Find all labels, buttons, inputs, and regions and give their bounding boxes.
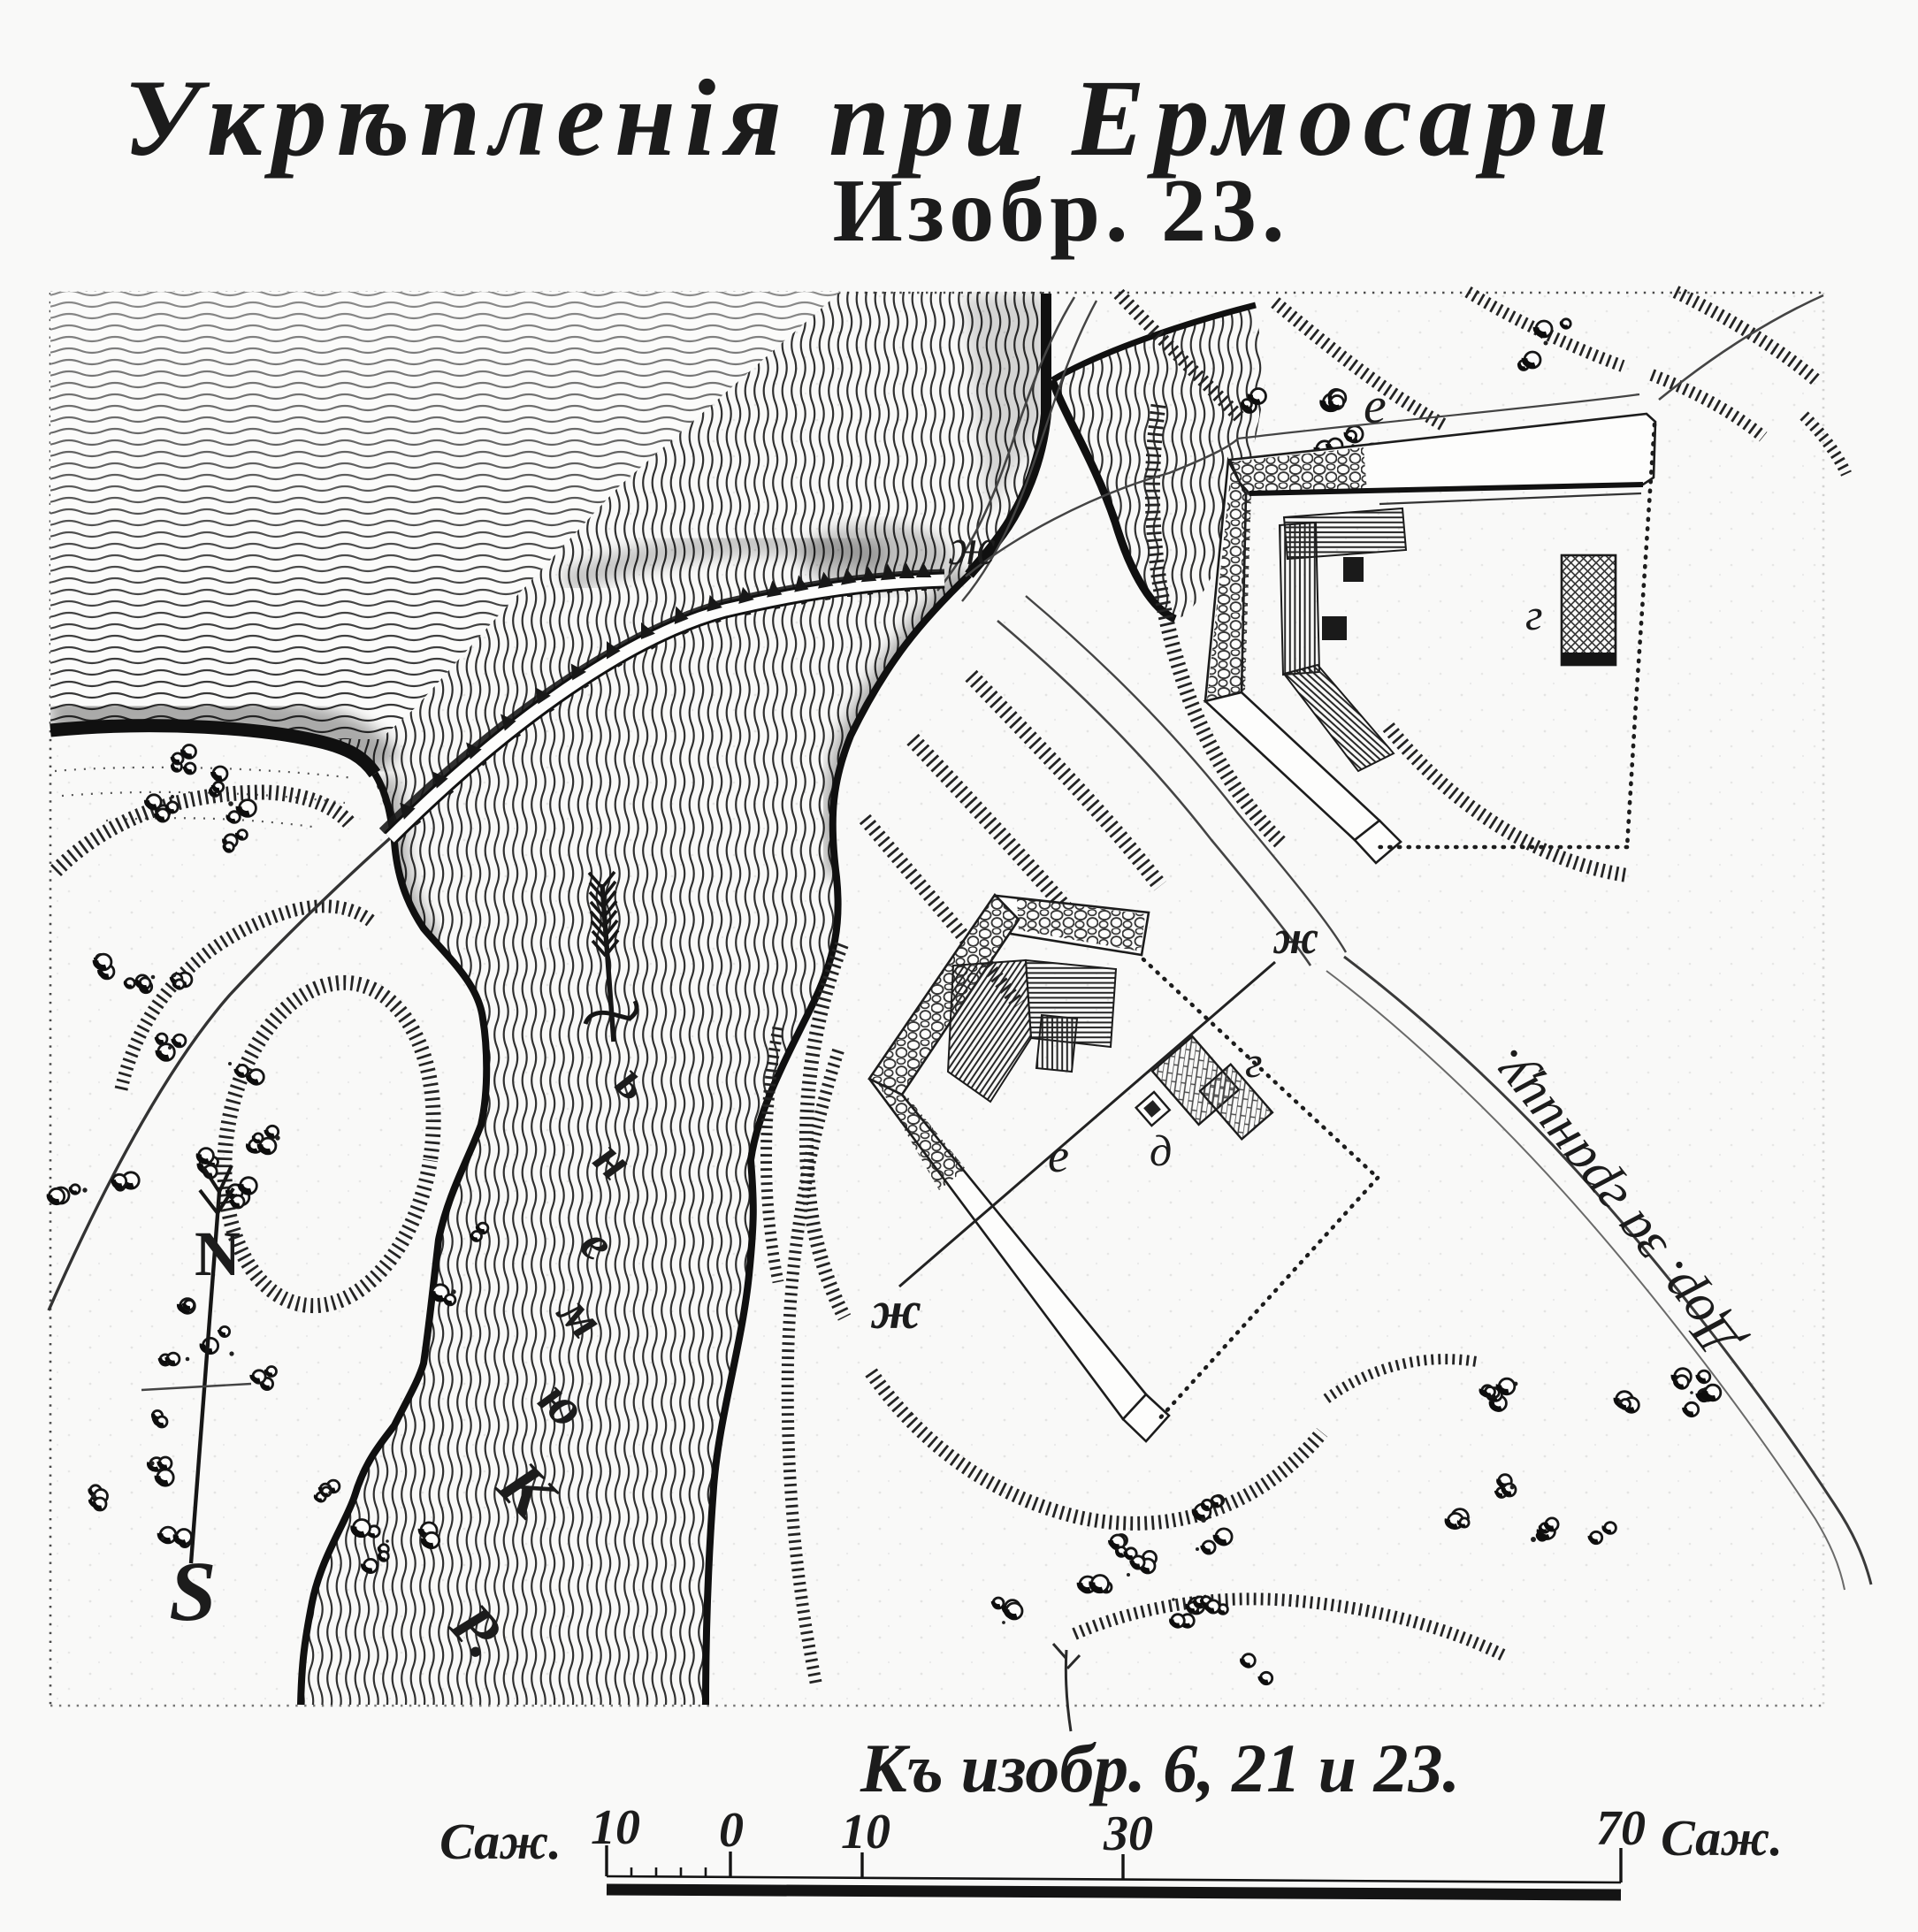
svg-text:Къ изобр. 6, 21 и 23.: Къ изобр. 6, 21 и 23. xyxy=(860,1730,1460,1806)
svg-text:70: 70 xyxy=(1596,1801,1646,1856)
svg-text:Саж.: Саж. xyxy=(439,1813,562,1870)
svg-text:30: 30 xyxy=(1103,1806,1153,1861)
svg-text:e: e xyxy=(1364,377,1387,434)
svg-text:ж: ж xyxy=(870,1281,921,1340)
svg-text:г: г xyxy=(1525,590,1543,639)
svg-text:e: e xyxy=(1048,1129,1069,1182)
svg-text:ж: ж xyxy=(1272,911,1318,964)
svg-text:0: 0 xyxy=(719,1803,744,1858)
svg-text:10: 10 xyxy=(591,1800,640,1855)
svg-text:Саж.: Саж. xyxy=(1661,1809,1783,1867)
svg-text:ж: ж xyxy=(948,518,996,576)
svg-text:N: N xyxy=(195,1218,241,1289)
svg-text:S: S xyxy=(169,1544,216,1638)
svg-text:д: д xyxy=(1150,1126,1172,1175)
svg-text:Изобр. 23.: Изобр. 23. xyxy=(833,161,1290,261)
svg-text:10: 10 xyxy=(841,1805,890,1859)
